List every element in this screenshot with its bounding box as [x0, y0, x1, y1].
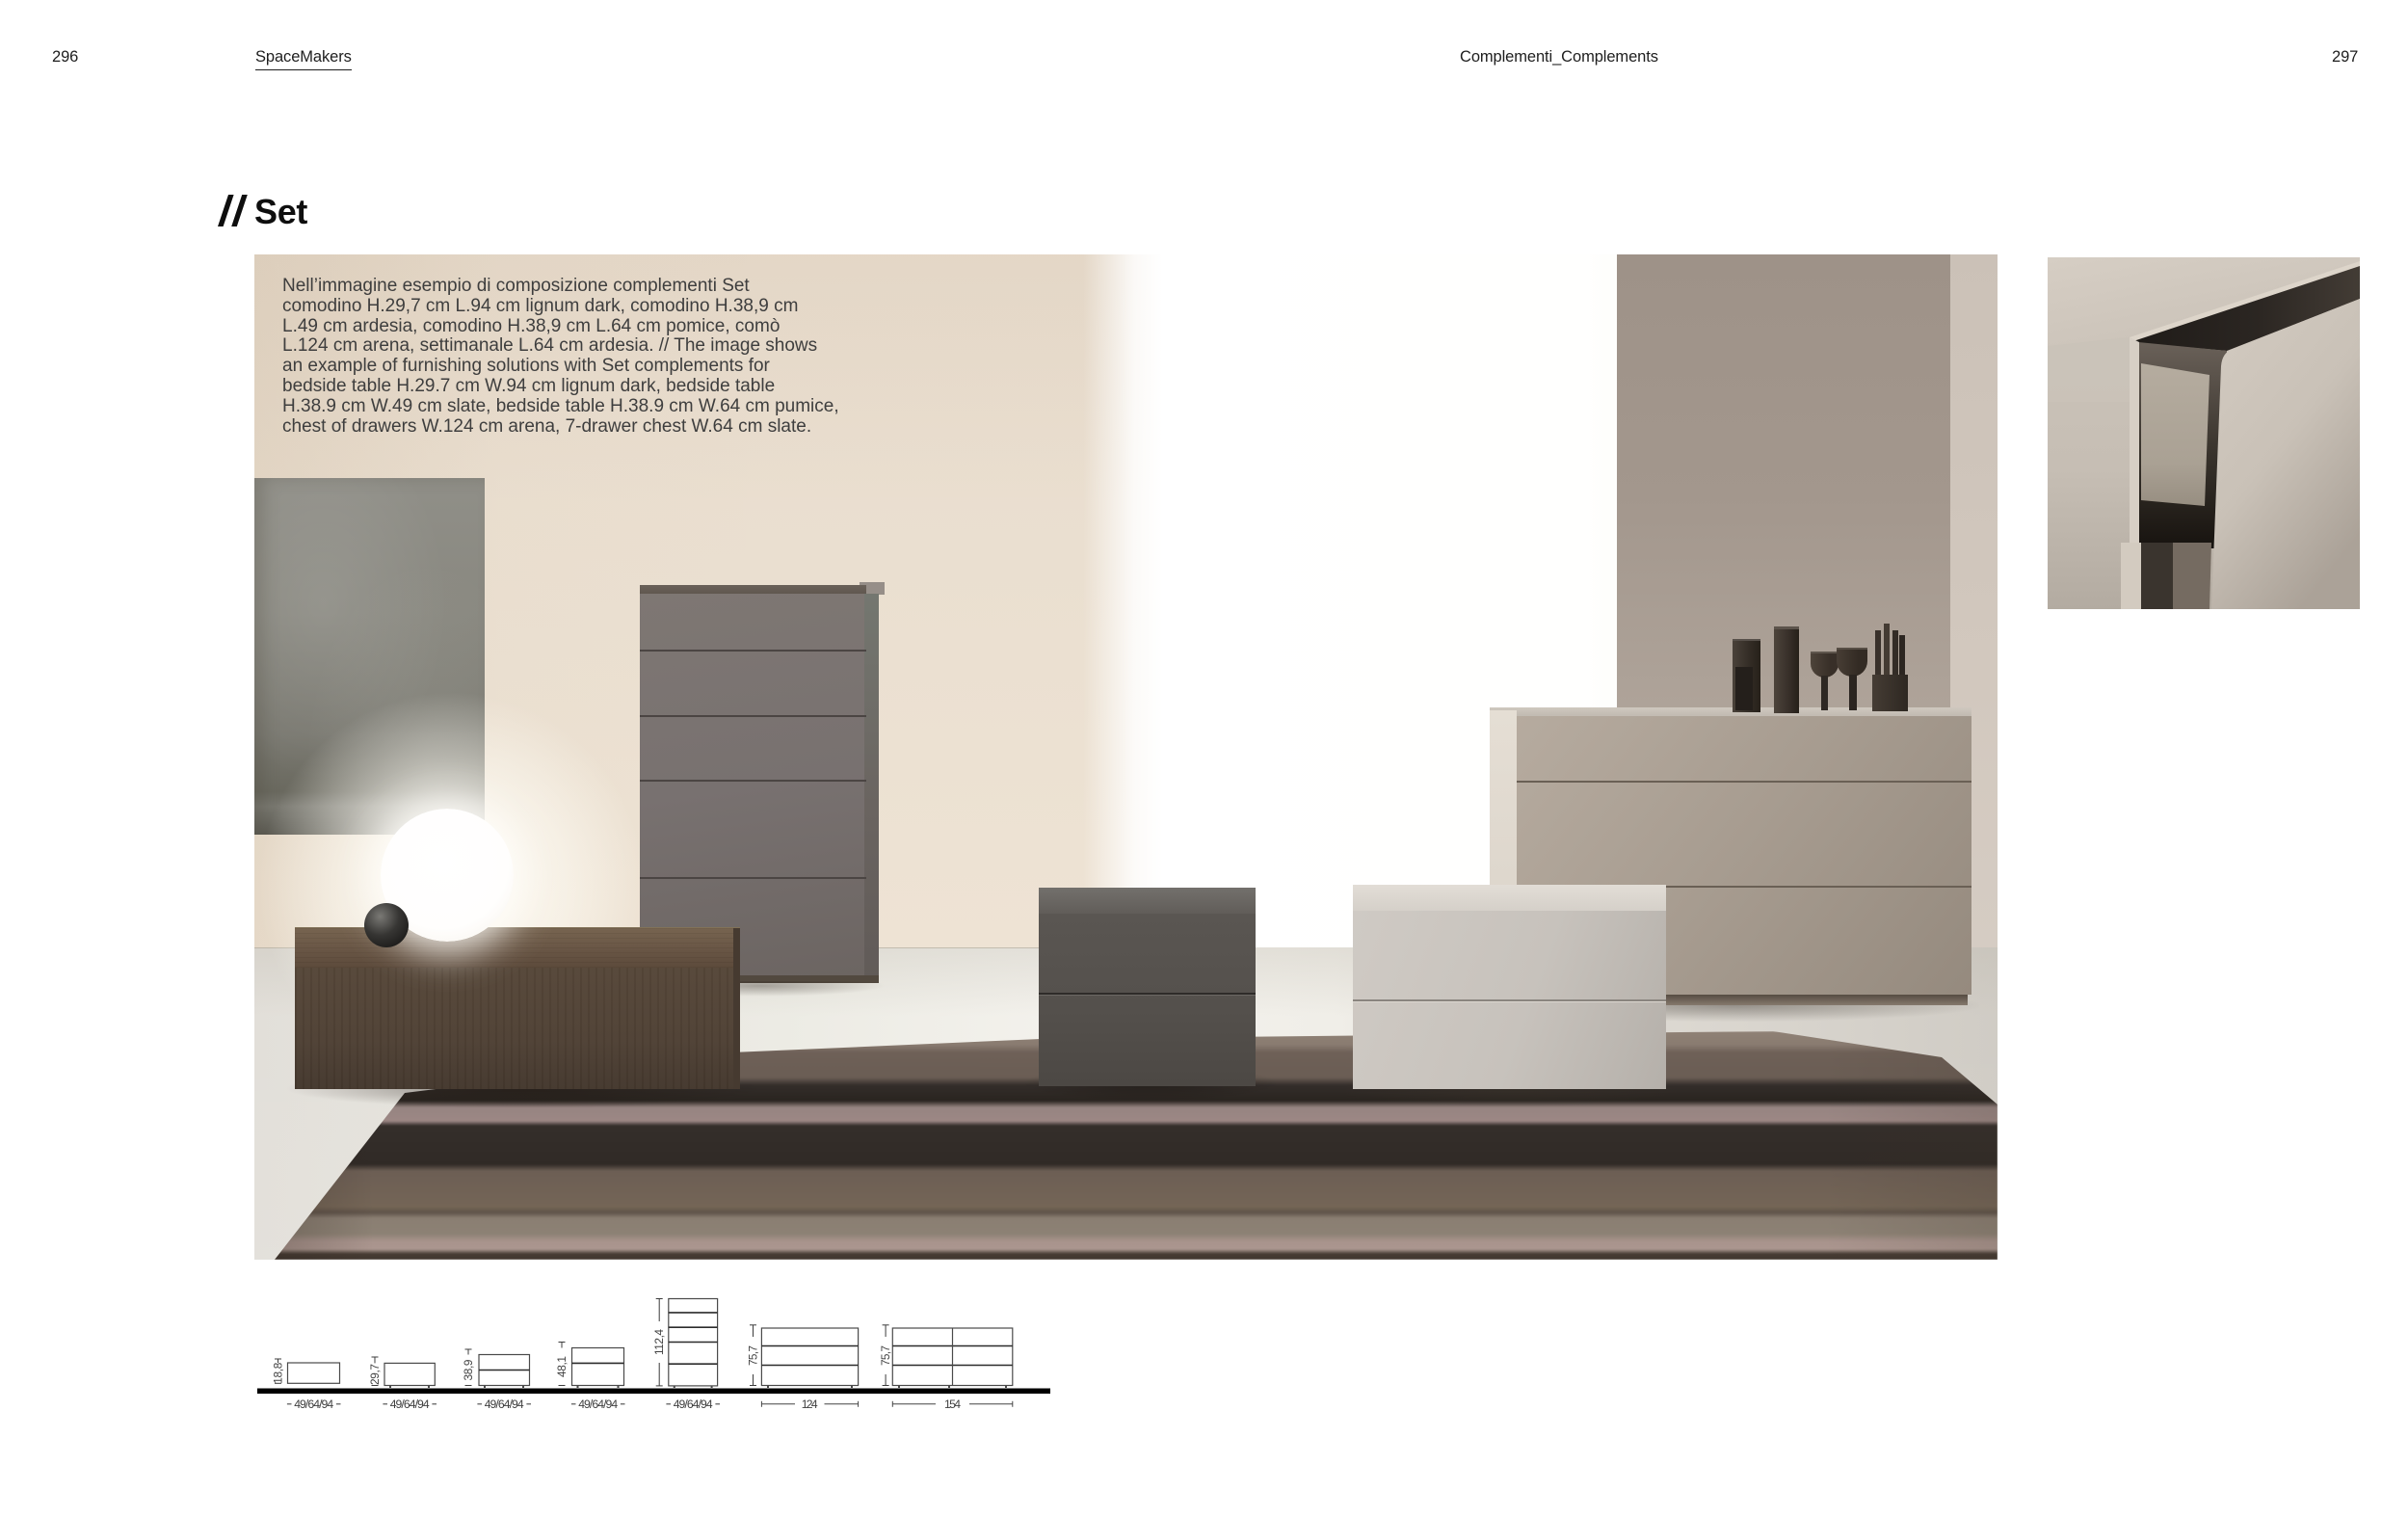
svg-text:48,1: 48,1 — [555, 1356, 569, 1377]
svg-text:75,7: 75,7 — [747, 1345, 760, 1366]
svg-text:154: 154 — [944, 1397, 961, 1411]
svg-text:49/64/94: 49/64/94 — [674, 1397, 713, 1411]
svg-text:49/64/94: 49/64/94 — [485, 1397, 524, 1411]
svg-text:38,9: 38,9 — [462, 1360, 475, 1381]
svg-text:49/64/94: 49/64/94 — [294, 1397, 333, 1411]
svg-text:112,4: 112,4 — [652, 1329, 666, 1355]
svg-text:49/64/94: 49/64/94 — [390, 1397, 430, 1411]
svg-text:75,7: 75,7 — [879, 1345, 892, 1366]
svg-text:18,8: 18,8 — [272, 1362, 285, 1383]
svg-text:49/64/94: 49/64/94 — [578, 1397, 618, 1411]
svg-text:124: 124 — [802, 1397, 818, 1411]
svg-text:29,7: 29,7 — [368, 1364, 382, 1385]
